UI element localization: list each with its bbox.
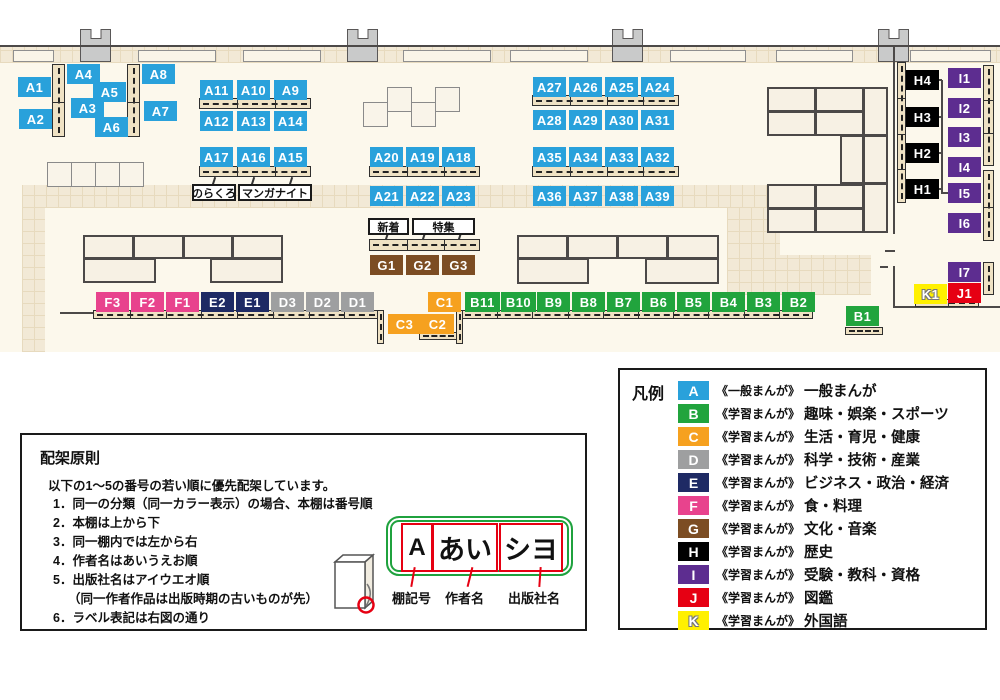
wall-segment [893,266,895,307]
shelf-label: D1 [341,292,374,312]
shelf-label: D2 [306,292,339,312]
legend-type: 《学習まんが》 [716,543,804,560]
shelf-label: B11 [465,292,500,312]
legend-category: 歴史 [804,541,833,562]
furniture-block [863,87,888,136]
shelf-label: A2 [19,109,52,129]
principles-intro: 以下の1～5の番号の若い順に優先配架しています。 [48,475,335,494]
shelf-label: I2 [948,98,981,118]
shelf-label: A24 [641,77,674,97]
shelf-label: I4 [948,157,981,177]
furniture-block [232,235,283,259]
legend-category: 外国語 [804,610,848,631]
bookshelf [127,64,140,137]
page: のらくろマンガナイト新着特集A1A2A4A3A5A6A8A7A11A10A9A1… [0,0,1000,700]
shelf-label: C3 [388,314,421,334]
wall-segment [880,266,888,268]
legend-category: 図鑑 [804,587,833,608]
furniture-block [617,235,668,259]
floor-path [727,255,871,295]
legend-type: 《学習まんが》 [716,405,804,422]
shelf-label: B5 [677,292,710,312]
shelf-label: A39 [641,186,674,206]
shelf-label: A21 [370,186,403,206]
shelf-label: A10 [237,80,270,100]
legend-panel: 凡例 A 《一般まんが》 一般まんが B 《学習まんが》 趣味・娯楽・スポーツ … [618,368,987,630]
legend-category: 受験・教科・資格 [804,564,920,585]
shelf-label: A38 [605,186,638,206]
shelf-label: B3 [747,292,780,312]
shelf-label: A11 [200,80,233,100]
furniture-block [517,258,589,284]
principles-item: （同一作者作品は出版時期の古いものが先） [53,590,372,609]
principles-item: 6．ラベル表記は右図の通り [53,609,372,628]
furniture-block [863,183,888,233]
shelf-label: A32 [641,147,674,167]
furniture-block [767,87,816,112]
furniture-block [83,258,156,283]
legend-category: ビジネス・政治・経済 [804,472,949,493]
legend-type: 《学習まんが》 [716,566,804,583]
shelf-label: A28 [533,110,566,130]
shelf-label: I3 [948,127,981,147]
shelf-label: A8 [142,64,175,84]
shelf-label: F3 [96,292,129,312]
legend-chip: G [678,519,709,538]
diagram-box: A [401,523,433,572]
principles-item: 5．出版社名はアイウエオ順 [53,571,372,590]
shelf-label: C1 [428,292,461,312]
shelf-label: G3 [442,255,475,275]
window [13,50,54,62]
furniture-block [815,87,864,112]
legend-title: 凡例 [632,380,664,404]
bookshelf [456,310,463,344]
shelf-label: A33 [605,147,638,167]
table-square [71,162,96,187]
shelf-label: A1 [18,77,51,97]
furniture-block [863,135,888,184]
shelf-label: A29 [569,110,602,130]
shelf-label: B8 [572,292,605,312]
shelf-label: H1 [906,179,939,199]
legend-chip: D [678,450,709,469]
furniture-block [767,111,816,136]
shelf-label: B1 [846,306,879,326]
bookshelf [983,262,994,295]
legend-chip: K [678,611,709,630]
area-tag: 新着 [368,218,409,235]
shelf-label: G1 [370,255,403,275]
shelf-label: B7 [607,292,640,312]
furniture-block [645,258,719,284]
furniture-block [815,208,864,233]
legend-row: D 《学習まんが》 科学・技術・産業 [678,448,949,471]
wall-segment [60,312,94,314]
table-square [411,102,436,127]
shelf-label: A14 [274,111,307,131]
window [670,50,746,62]
bookshelf [532,166,679,177]
shelf-label: A7 [144,101,177,121]
legend-category: 趣味・娯楽・スポーツ [804,403,949,424]
shelf-label: A26 [569,77,602,97]
shelf-label: I1 [948,68,981,88]
shelf-label: B9 [537,292,570,312]
wall-segment [893,47,895,234]
connector-line [941,80,943,194]
legend-chip: I [678,565,709,584]
shelf-label: A23 [442,186,475,206]
principles-item: 1．同一の分類（同一カラー表示）の場合、本棚は番号順 [53,495,372,514]
furniture-block [133,235,184,259]
book-icon [327,548,381,618]
legend-category: 科学・技術・産業 [804,449,920,470]
shelf-label: J1 [948,283,981,303]
diagram-caption: 棚記号 [392,588,431,607]
bookshelf [199,166,311,177]
table-square [363,102,388,127]
legend-chip: B [678,404,709,423]
bookshelf [369,166,480,177]
furniture-block [767,208,816,233]
diagram-box: あい [432,523,498,572]
shelf-label: I6 [948,213,981,233]
shelf-label: A30 [605,110,638,130]
shelf-label: B10 [501,292,536,312]
shelf-label: F1 [166,292,199,312]
legend-type: 《学習まんが》 [716,451,804,468]
bookshelf [983,170,994,241]
table-square [435,87,460,112]
shelf-label: A5 [93,82,126,102]
shelf-label: A27 [533,77,566,97]
shelf-label: I5 [948,183,981,203]
legend-category: 文化・音楽 [804,518,877,539]
legend-row: C 《学習まんが》 生活・育児・健康 [678,425,949,448]
furniture-block [83,235,134,259]
legend-type: 《学習まんが》 [716,474,804,491]
shelf-label: A35 [533,147,566,167]
shelf-label: A16 [237,147,270,167]
bookshelf [369,239,480,251]
shelf-label: C2 [421,314,454,334]
window [776,50,853,62]
shelf-label: A18 [442,147,475,167]
principles-title: 配架原則 [40,447,100,468]
table-square [387,87,412,112]
wall-segment [885,250,895,252]
shelf-label: A13 [237,111,270,131]
window [243,50,321,62]
legend-row: F 《学習まんが》 食・料理 [678,494,949,517]
furniture-block [183,235,233,259]
legend-row: B 《学習まんが》 趣味・娯楽・スポーツ [678,402,949,425]
bookshelf [897,62,906,203]
shelf-label: B6 [642,292,675,312]
legend-row: A 《一般まんが》 一般まんが [678,379,949,402]
legend-type: 《学習まんが》 [716,428,804,445]
diagram-box: シヨ [499,523,563,572]
diagram-caption: 出版社名 [508,588,560,607]
principles-items: 1．同一の分類（同一カラー表示）の場合、本棚は番号順2．本棚は上から下3．同一棚… [53,495,372,628]
legend-type: 《学習まんが》 [716,520,804,537]
shelf-label: E2 [201,292,234,312]
furniture-block [767,184,816,209]
shelf-label: A37 [569,186,602,206]
area-tag: マンガナイト [238,184,312,201]
diagram-caption: 作者名 [445,588,484,607]
legend-category: 一般まんが [804,380,877,401]
shelf-label: G2 [406,255,439,275]
legend-row: I 《学習まんが》 受験・教科・資格 [678,563,949,586]
legend-row: J 《学習まんが》 図鑑 [678,586,949,609]
shelf-label: A19 [406,147,439,167]
wall-segment [0,45,1000,47]
legend-chip: A [678,381,709,400]
furniture-block [210,258,283,283]
shelf-label: A25 [605,77,638,97]
furniture-block [567,235,618,259]
legend-row: H 《学習まんが》 歴史 [678,540,949,563]
legend-category: 食・料理 [804,495,862,516]
shelf-label: A22 [406,186,439,206]
legend-row: K 《学習まんが》 外国語 [678,609,949,632]
shelf-label: A9 [274,80,307,100]
legend-category: 生活・育児・健康 [804,426,920,447]
shelf-label: A36 [533,186,566,206]
furniture-block [517,235,568,259]
area-tag: 特集 [412,218,475,235]
furniture-block [667,235,719,259]
shelf-label: F2 [131,292,164,312]
shelf-label: A15 [274,147,307,167]
shelf-label: K1 [914,284,947,304]
legend-row: G 《学習まんが》 文化・音楽 [678,517,949,540]
shelf-label: A4 [67,64,100,84]
bookshelf [845,327,883,335]
shelf-label: A17 [200,147,233,167]
floor-path [22,208,45,352]
legend-type: 《学習まんが》 [716,497,804,514]
legend-type: 《学習まんが》 [716,612,804,629]
furniture-block [815,111,864,136]
legend-row: E 《学習まんが》 ビジネス・政治・経済 [678,471,949,494]
bookshelf [377,310,384,344]
principles-item: 3．同一棚内では左から右 [53,533,372,552]
shelf-label: B4 [712,292,745,312]
shelf-label: A31 [641,110,674,130]
bookshelf [52,64,65,137]
window [510,50,588,62]
shelf-label: H2 [906,143,939,163]
window [403,50,491,62]
legend-rows: A 《一般まんが》 一般まんが B 《学習まんが》 趣味・娯楽・スポーツ C 《… [678,379,949,632]
floor-map: のらくろマンガナイト新着特集A1A2A4A3A5A6A8A7A11A10A9A1… [0,46,1000,352]
shelf-label: A12 [200,111,233,131]
shelf-label: A20 [370,147,403,167]
area-tag: のらくろ [192,184,236,201]
legend-type: 《学習まんが》 [716,589,804,606]
legend-type: 《一般まんが》 [716,382,804,399]
shelf-label: H4 [906,70,939,90]
table-square [95,162,120,187]
shelf-label: I7 [948,262,981,282]
legend-chip: F [678,496,709,515]
legend-chip: E [678,473,709,492]
furniture-block [815,184,864,209]
bookshelf [983,65,994,166]
shelf-label: H3 [906,107,939,127]
legend-chip: H [678,542,709,561]
legend-chip: C [678,427,709,446]
table-square [119,162,144,187]
principles-item: 2．本棚は上から下 [53,514,372,533]
principles-item: 4．作者名はあいうえお順 [53,552,372,571]
shelf-label: B2 [782,292,815,312]
window [910,50,991,62]
shelf-label: D3 [271,292,304,312]
table-square [47,162,72,187]
furniture-block [840,135,864,184]
legend-chip: J [678,588,709,607]
shelf-label: E1 [236,292,269,312]
shelf-label: A34 [569,147,602,167]
shelf-label: A6 [95,117,128,137]
window [138,50,216,62]
